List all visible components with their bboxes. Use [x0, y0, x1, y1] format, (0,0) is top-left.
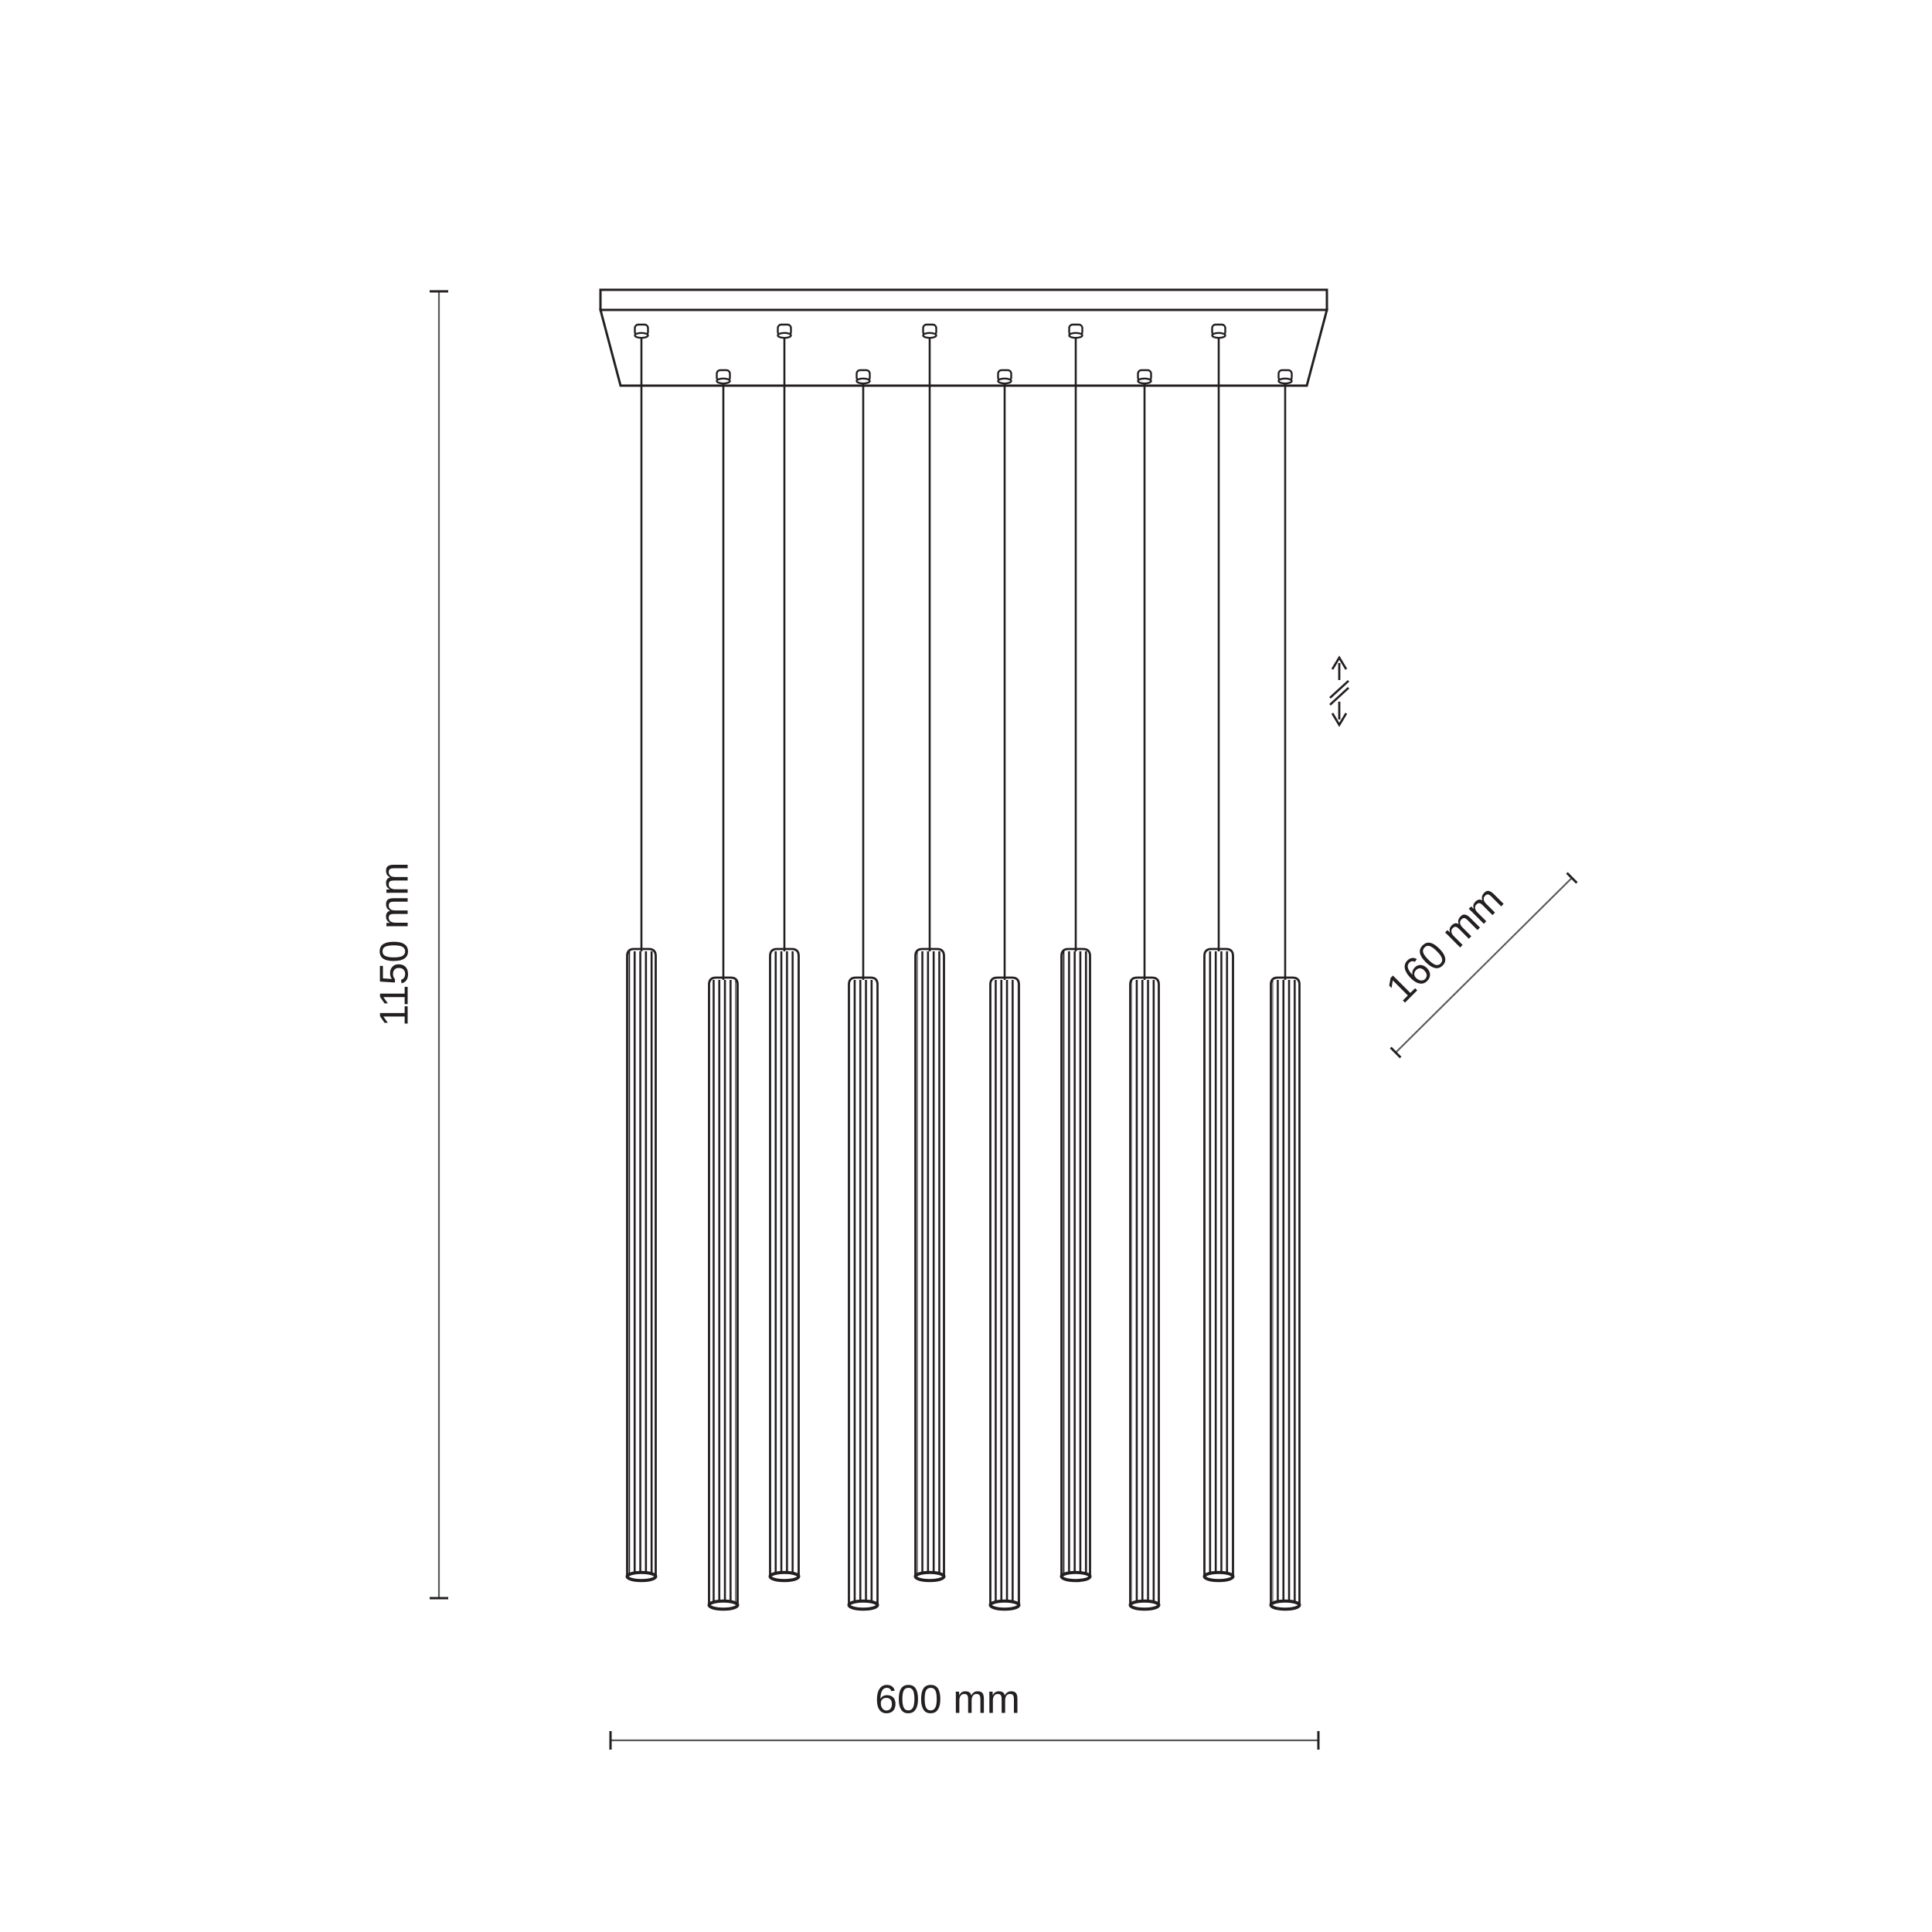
pendant-column — [1205, 325, 1233, 1580]
pendants-group — [628, 325, 1300, 1609]
pendant-column — [770, 325, 799, 1580]
width-dimension: 600 mm — [611, 1678, 1318, 1750]
canopy-hook-base — [923, 333, 937, 338]
spacing-dimension-label: 160 mm — [1378, 877, 1512, 1012]
tube-ribs — [1063, 951, 1089, 1577]
spacing-dimension: 160 mm — [1378, 873, 1577, 1058]
canopy-hook-base — [1279, 379, 1292, 383]
tube-ribs — [711, 980, 736, 1605]
pendant-column — [1271, 370, 1300, 1609]
diagram-canvas: 1150 mm 600 mm 160 mm — [0, 0, 1932, 1932]
tube-bottom-rim — [991, 1601, 1019, 1609]
tube-ribs — [851, 980, 876, 1605]
height-dimension: 1150 mm — [372, 291, 448, 1598]
tube-bottom-rim — [849, 1601, 878, 1609]
height-adjustment-arrow-icon — [1330, 658, 1349, 725]
tube-ribs — [1132, 980, 1158, 1605]
tube-ribs — [1273, 980, 1298, 1605]
tube-ribs — [772, 951, 798, 1577]
tube-ribs — [917, 951, 943, 1577]
tube-ribs — [1206, 951, 1232, 1577]
canopy-band — [600, 290, 1327, 310]
pendant-column — [1062, 325, 1090, 1580]
height-dimension-label: 1150 mm — [372, 862, 417, 1027]
tube-bottom-rim — [1205, 1573, 1233, 1580]
pendant-column — [916, 325, 944, 1580]
tube-bottom-rim — [709, 1601, 738, 1609]
width-dimension-label: 600 mm — [875, 1678, 1020, 1723]
tube-bottom-rim — [770, 1573, 799, 1580]
tube-bottom-rim — [628, 1573, 656, 1580]
canopy-hook-base — [717, 379, 730, 383]
tube-bottom-rim — [1131, 1601, 1159, 1609]
pendant-column — [991, 370, 1019, 1609]
canopy-hook-base — [857, 379, 870, 383]
pendant-column — [628, 325, 656, 1580]
tube-bottom-rim — [1271, 1601, 1300, 1609]
canopy-hook-base — [635, 333, 648, 338]
canopy-hook-base — [1213, 333, 1226, 338]
tube-ribs — [992, 980, 1018, 1605]
canopy-hook-base — [1138, 379, 1151, 383]
canopy-hook-base — [1070, 333, 1083, 338]
pendant-column — [1131, 370, 1159, 1609]
pendant-column — [849, 370, 878, 1609]
tube-ribs — [629, 951, 655, 1577]
canopy-hook-base — [998, 379, 1012, 383]
tube-bottom-rim — [916, 1573, 944, 1580]
tube-bottom-rim — [1062, 1573, 1090, 1580]
canopy-hook-base — [778, 333, 791, 338]
pendant-column — [709, 370, 738, 1609]
